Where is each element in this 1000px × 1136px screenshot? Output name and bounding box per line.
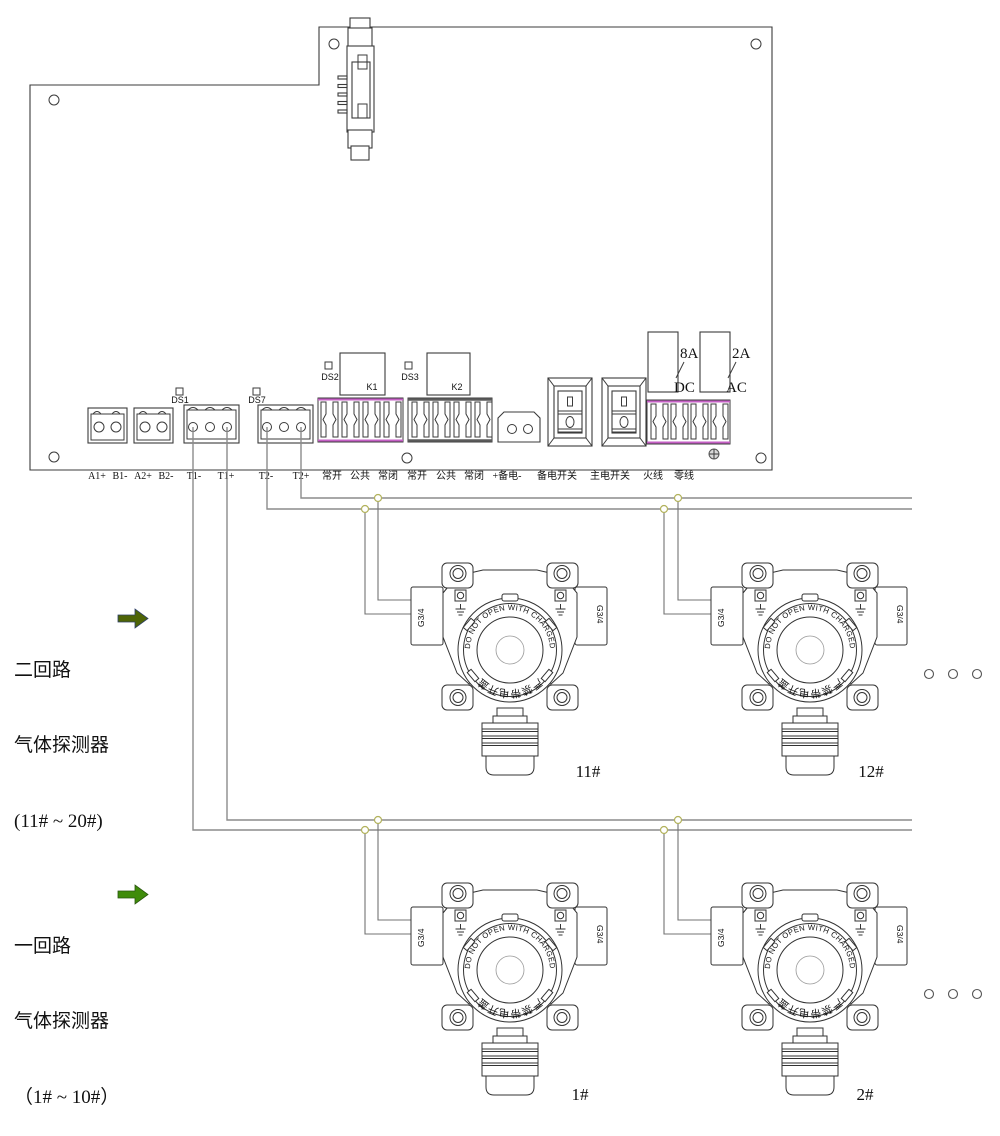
terminal-label: T1+ xyxy=(218,471,235,482)
terminal-block-a1b1 xyxy=(88,408,127,443)
terminal-label: B1- xyxy=(113,471,128,482)
loop1-label: 一回路 气体探测器 （1# ~ 10#） xyxy=(14,884,119,1135)
loop2-line1: 二回路 xyxy=(14,658,109,683)
gas-detector-1 xyxy=(411,883,607,1095)
terminal-label: 公共 xyxy=(436,470,456,482)
junction-node xyxy=(362,827,369,834)
junction-node xyxy=(375,495,382,502)
ds3-label: DS3 xyxy=(401,372,419,382)
detector-label: 11# xyxy=(576,762,601,781)
detector-label: 1# xyxy=(572,1085,590,1104)
terminal-label: A1+ xyxy=(88,471,106,482)
wire-drop xyxy=(664,509,711,614)
junction-node xyxy=(362,506,369,513)
terminal-label: 常闭 xyxy=(378,469,398,482)
terminal-label: 火线 xyxy=(643,469,663,482)
more-detectors-dots xyxy=(925,670,982,679)
fuse-dc-rating: 8A xyxy=(680,346,699,362)
terminal-label: A2+ xyxy=(134,471,152,482)
terminal-label: 常开 xyxy=(322,469,342,482)
screw-icon xyxy=(709,449,719,459)
gas-detector-11 xyxy=(411,563,607,775)
loop1-line2: 气体探测器 xyxy=(14,1009,119,1034)
junction-node xyxy=(661,506,668,513)
gas-detector-2 xyxy=(711,883,907,1095)
terminal-block-t2 xyxy=(258,405,313,443)
terminal-label: 零线 xyxy=(674,469,694,482)
terminal-label: +备电- xyxy=(493,469,522,482)
terminal-label: T2- xyxy=(259,471,273,482)
flow-arrow-icon xyxy=(118,885,148,904)
ds2-label: DS2 xyxy=(321,372,339,382)
terminal-block-t1 xyxy=(184,405,239,443)
ds7-label: DS7 xyxy=(248,395,266,405)
wiring-diagram: DO NOT OPEN WITH CHARGED 严禁带电开盖 G3/4 G3/… xyxy=(0,0,1000,1136)
wiring-diagram-page: DO NOT OPEN WITH CHARGED 严禁带电开盖 G3/4 G3/… xyxy=(0,0,1000,1136)
terminal-label: 主电开关 xyxy=(590,469,630,482)
loop1-line1: 一回路 xyxy=(14,934,119,959)
terminal-label: B2- xyxy=(159,471,174,482)
wire-drop xyxy=(678,498,711,600)
switch-backup-power xyxy=(548,378,592,446)
more-detectors-dots xyxy=(925,990,982,999)
loop2-line2: 气体探测器 xyxy=(14,733,109,758)
terminal-block-a2b2 xyxy=(134,408,173,443)
wire-drop xyxy=(678,820,711,920)
terminal-label: 公共 xyxy=(350,470,370,482)
fuse-ac-rating: 2A xyxy=(732,346,751,362)
detector-label: 12# xyxy=(858,762,884,781)
loop2-line3: (11# ~ 20#) xyxy=(14,809,109,834)
terminal-label: T1- xyxy=(187,471,201,482)
switch-main-power xyxy=(602,378,646,446)
junction-node xyxy=(661,827,668,834)
terminal-label: 常闭 xyxy=(464,469,484,482)
flow-arrow-icon xyxy=(118,609,148,628)
wire-drop xyxy=(365,509,411,614)
terminal-label: 常开 xyxy=(407,469,427,482)
fuse-dc-type: DC xyxy=(674,380,695,396)
terminal-label: 备电开关 xyxy=(537,469,577,482)
wire-drop xyxy=(664,830,711,934)
relay-k1: K1 xyxy=(340,353,385,395)
wire-drop xyxy=(378,820,411,920)
detector-label: 2# xyxy=(857,1085,875,1104)
ds1-label: DS1 xyxy=(171,395,189,405)
k1-label: K1 xyxy=(366,382,377,392)
fuse-ac-type: AC xyxy=(726,380,747,396)
wire-drop xyxy=(378,498,411,600)
junction-node xyxy=(675,495,682,502)
loop2-label: 二回路 气体探测器 (11# ~ 20#) xyxy=(14,608,109,859)
wire-drop xyxy=(365,830,411,934)
gas-detector-12 xyxy=(711,563,907,775)
terminal-labels: A1+ B1- A2+ B2- T1- T1+ T2- T2+ 常开 公共 常闭… xyxy=(88,469,694,482)
battery-terminal-block xyxy=(498,412,540,442)
relay-k2: K2 xyxy=(427,353,470,395)
k2-label: K2 xyxy=(451,382,462,392)
loop1-line3: （1# ~ 10#） xyxy=(14,1085,119,1110)
junction-node xyxy=(675,817,682,824)
junction-node xyxy=(375,817,382,824)
